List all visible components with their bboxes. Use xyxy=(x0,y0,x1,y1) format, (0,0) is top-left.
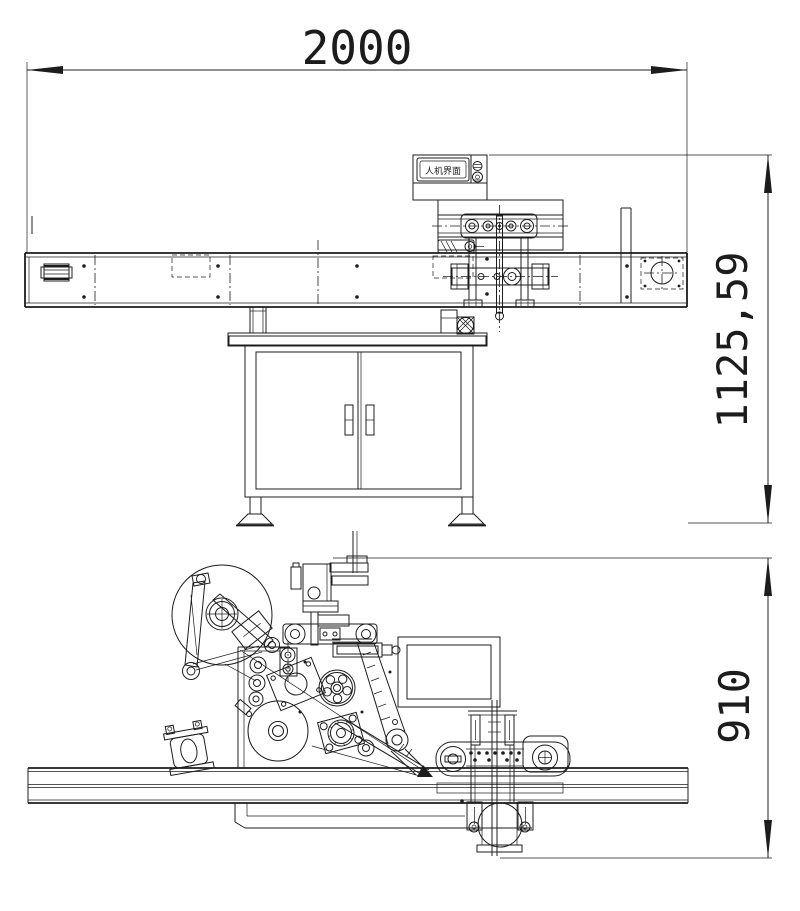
conveyor-plan xyxy=(28,768,688,803)
side-elevation-view: 2000 人机界面 xyxy=(25,21,772,526)
label-head-assembly xyxy=(432,200,568,332)
bottom-clamp-unit xyxy=(467,802,533,852)
head-rails xyxy=(468,700,517,856)
arrow-right xyxy=(651,66,687,74)
arrow-down xyxy=(764,485,772,523)
dim-1125-label: 1125,59 xyxy=(708,251,757,428)
drawing-canvas: 2000 人机界面 xyxy=(0,0,800,911)
hmi-screen-label: 人机界面 xyxy=(425,165,461,177)
label-plate xyxy=(267,657,326,710)
dimension-length-2000: 2000 xyxy=(27,21,687,253)
machine-drawing: 2000 人机界面 xyxy=(0,0,800,911)
cross-slide-clamp xyxy=(443,257,558,296)
table-motor xyxy=(441,310,474,334)
hmi-knob-icon xyxy=(473,162,483,183)
arrow-left xyxy=(27,66,63,74)
dimension-depth-910: 910 xyxy=(333,558,772,858)
arrow-up xyxy=(764,155,772,193)
hmi-screen-top xyxy=(398,637,500,707)
sensor-cylinder xyxy=(438,240,484,253)
cabinet-stand xyxy=(228,307,487,526)
applicator-plate xyxy=(225,624,433,777)
plan-view: 910 xyxy=(28,531,772,858)
arrow-down xyxy=(764,820,772,858)
sensor-target xyxy=(641,256,683,291)
dim-910-label: 910 xyxy=(710,668,759,744)
sprocket-drive xyxy=(318,712,365,753)
conveyor-motor xyxy=(162,720,214,776)
hmi-panel: 人机界面 xyxy=(413,155,487,200)
drive-block xyxy=(41,264,72,281)
conveyor-side xyxy=(25,208,687,307)
arrow-up xyxy=(764,558,772,596)
grip-belt-unit xyxy=(436,736,570,776)
perforated-disc xyxy=(319,670,355,706)
door-handles xyxy=(345,405,374,435)
label-reel xyxy=(172,565,272,665)
dim-2000-label: 2000 xyxy=(302,21,413,75)
